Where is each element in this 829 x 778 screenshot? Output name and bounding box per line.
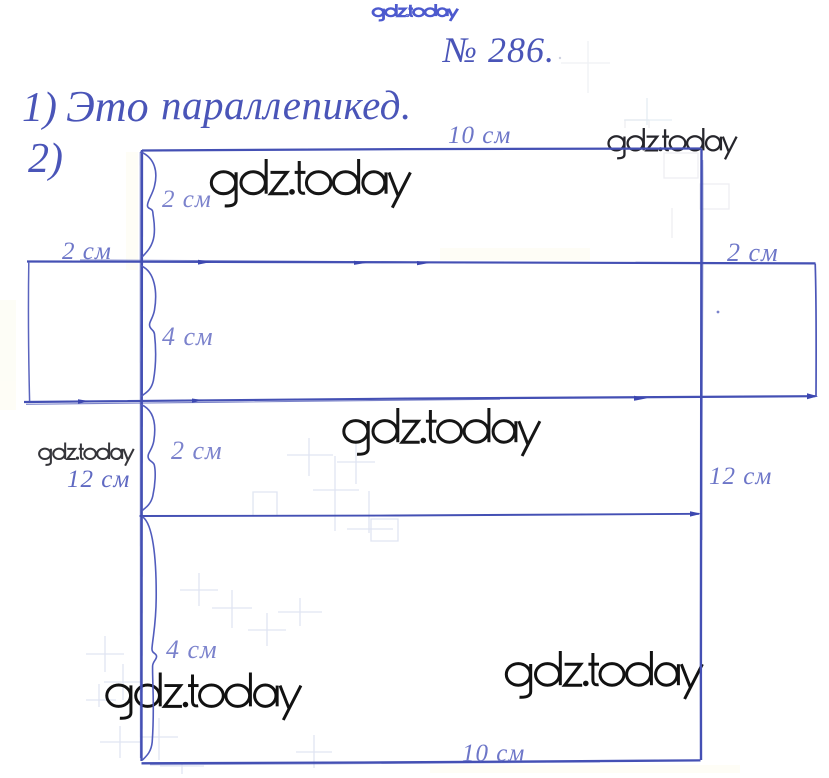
svg-text:параллепикед.: параллепикед. bbox=[161, 82, 412, 128]
svg-text:2): 2) bbox=[28, 136, 63, 182]
svg-text:4 см: 4 см bbox=[162, 322, 214, 351]
svg-text:№ 286.: № 286. bbox=[441, 30, 555, 70]
svg-text:1): 1) bbox=[22, 85, 57, 131]
svg-text:2 см: 2 см bbox=[171, 436, 223, 465]
svg-text:Это: Это bbox=[66, 82, 149, 131]
svg-text:2 см: 2 см bbox=[727, 238, 779, 267]
svg-text:10 см: 10 см bbox=[448, 122, 511, 149]
svg-text:2 см: 2 см bbox=[162, 186, 212, 213]
svg-text:2 см: 2 см bbox=[62, 238, 112, 265]
svg-text:12 см: 12 см bbox=[67, 466, 130, 493]
svg-text:4 см: 4 см bbox=[166, 635, 218, 664]
svg-text:12 см: 12 см bbox=[709, 463, 772, 490]
svg-text:10 см: 10 см bbox=[462, 740, 525, 767]
